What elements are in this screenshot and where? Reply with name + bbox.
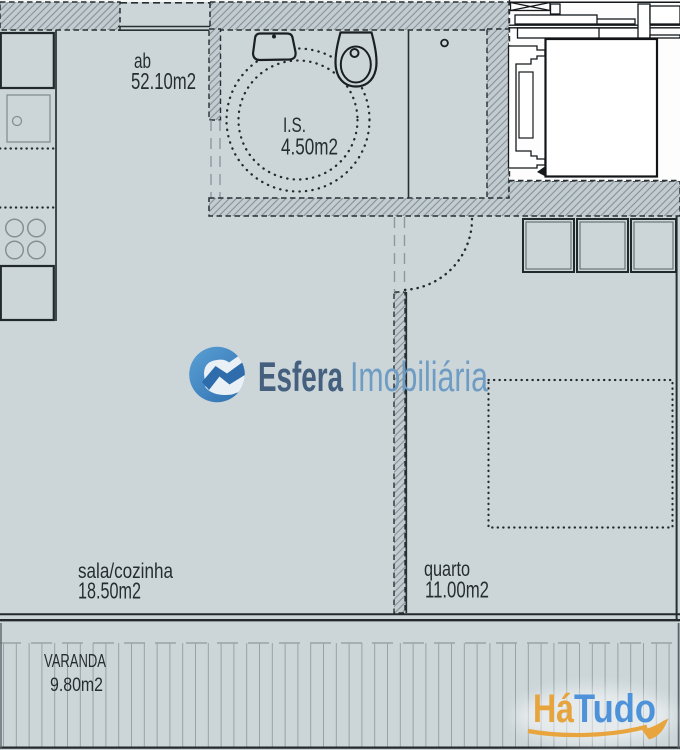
svg-text:52.10m2: 52.10m2 — [131, 68, 196, 94]
svg-text:11.00m2: 11.00m2 — [425, 577, 489, 603]
svg-text:18.50m2: 18.50m2 — [78, 578, 141, 604]
svg-text:9.80m2: 9.80m2 — [50, 675, 103, 696]
svg-text:Tudo: Tudo — [574, 687, 656, 731]
svg-text:Esfera: Esfera — [258, 353, 343, 400]
svg-text:Imobiliária: Imobiliária — [350, 353, 488, 400]
svg-text:4.50m2: 4.50m2 — [281, 134, 338, 160]
svg-text:Há: Há — [533, 687, 575, 731]
svg-text:VARANDA: VARANDA — [44, 650, 106, 671]
